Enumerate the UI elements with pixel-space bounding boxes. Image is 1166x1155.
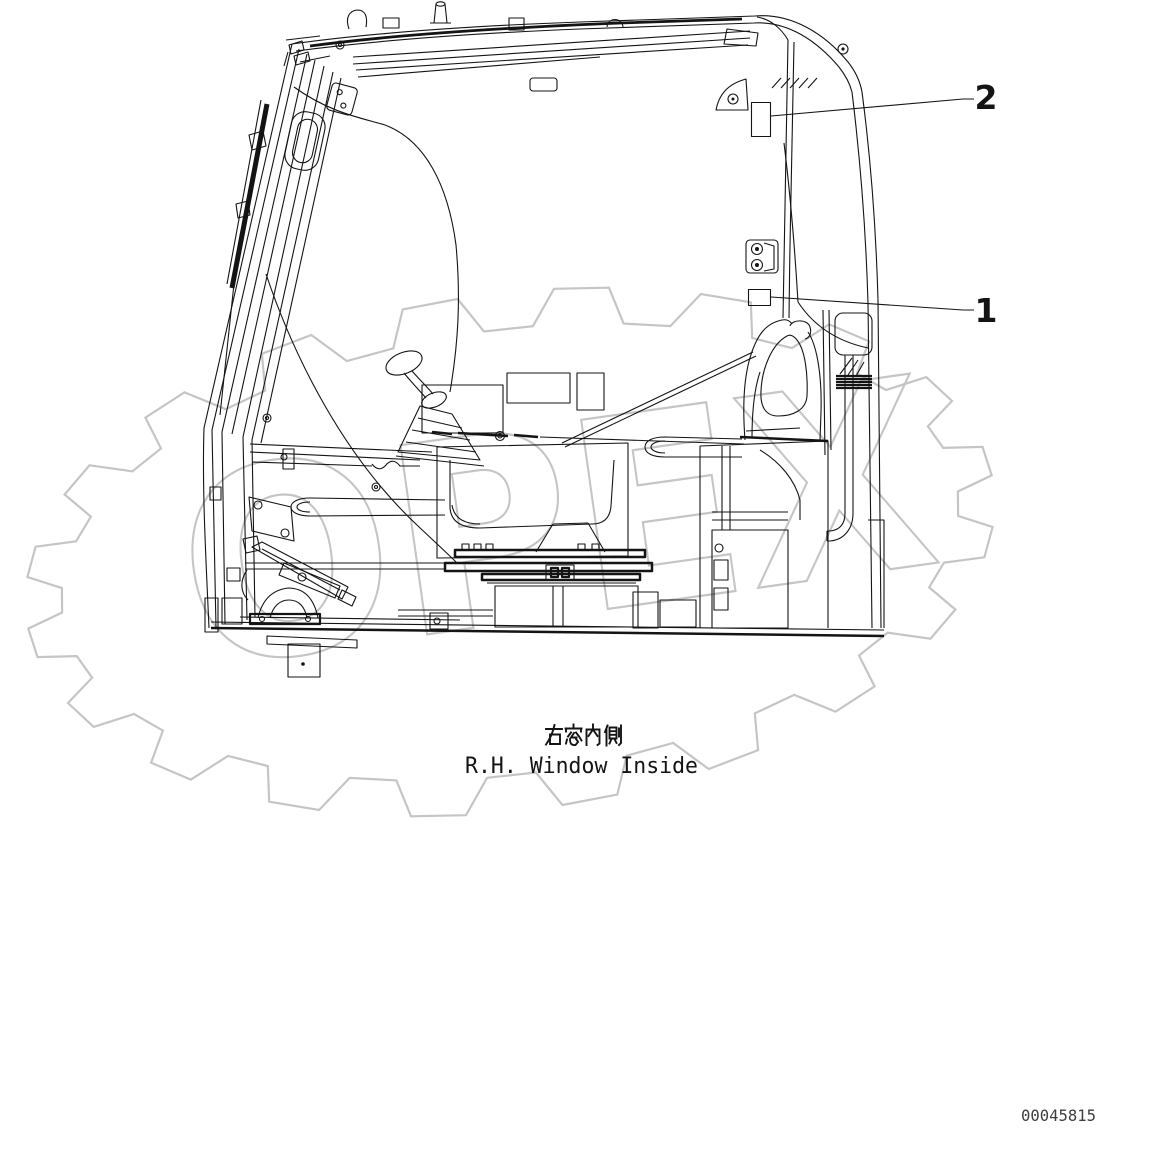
label-plate-2 — [752, 103, 771, 137]
diagram-page: OPEX — [0, 0, 1166, 1155]
watermark: OPEX — [27, 288, 992, 817]
callout-1-number: 1 — [975, 291, 998, 330]
cab-drawing: OPEX — [0, 0, 1166, 1155]
callout-1-leader — [771, 297, 974, 310]
callout-2-number: 2 — [975, 78, 998, 117]
drawing-number: 00045815 — [1021, 1106, 1096, 1125]
callout-2-leader — [771, 99, 974, 116]
caption: R.H. Window Inside — [465, 725, 698, 780]
caption-japanese — [546, 725, 621, 746]
caption-english: R.H. Window Inside — [465, 754, 698, 779]
